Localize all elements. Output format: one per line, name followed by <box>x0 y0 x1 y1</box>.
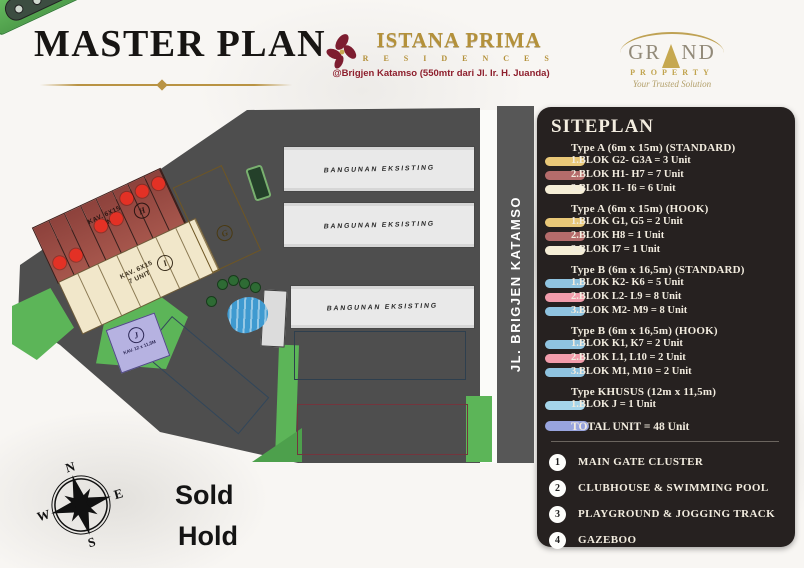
existing-building-label: BANGUNAN EKSISTING <box>326 302 438 312</box>
jogging-track-park <box>0 0 219 36</box>
siteplan-item-label: 1.BLOK G2- G3A = 3 Unit <box>571 155 785 166</box>
facility-label: PLAYGROUND & JOGGING TRACK <box>578 508 775 520</box>
compass-e: E <box>112 485 124 502</box>
siteplan-item: 2.BLOK L1, L10 = 2 Unit <box>549 352 785 366</box>
siteplan-item: 2.BLOK H8 = 1 Unit <box>549 230 785 244</box>
section-gap <box>549 197 785 201</box>
siteplan-section-header: Type KHUSUS (12m x 11,5m) <box>549 385 785 399</box>
existing-building-label: BANGUNAN EKSISTING <box>323 164 435 174</box>
siteplan-item: 2.BLOK L2- L9 = 8 Unit <box>549 291 785 305</box>
road-label: JL. BRIGJEN KATAMSO <box>508 196 523 372</box>
sold-marker <box>149 175 166 192</box>
facility-label: MAIN GATE CLUSTER <box>578 456 703 468</box>
facility-list: 1MAIN GATE CLUSTER2CLUBHOUSE & SWIMMING … <box>549 449 785 553</box>
facility-label: GAZEBOO <box>578 534 636 546</box>
siteplan-section-header: Type B (6m x 16,5m) (STANDARD) <box>549 263 785 277</box>
siteplan-item: 3.BLOK I7 = 1 Unit <box>549 244 785 258</box>
section-gap <box>549 413 785 417</box>
total-unit-label: TOTAL UNIT = 48 Unit <box>571 421 689 433</box>
existing-building-2: BANGUNAN EKSISTING <box>283 202 475 248</box>
tree-icon <box>217 279 228 290</box>
hold-swatch <box>133 523 163 553</box>
siteplan-item-label: 2.BLOK H1- H7 = 7 Unit <box>571 169 785 180</box>
siteplan-item-label: 2.BLOK H8 = 1 Unit <box>571 230 785 241</box>
facility-number-icon: 1 <box>549 454 566 471</box>
siteplan-item: 1.BLOK K1, K7 = 2 Unit <box>549 338 785 352</box>
facility-number-icon: 3 <box>549 506 566 523</box>
siteplan-item-label: 2.BLOK L2- L9 = 8 Unit <box>571 291 785 302</box>
siteplan-item-label: 3.BLOK I7 = 1 Unit <box>571 244 785 255</box>
siteplan-section-header: Type A (6m x 15m) (STANDARD) <box>549 141 785 155</box>
siteplan-item: 1.BLOK G2- G3A = 3 Unit <box>549 155 785 169</box>
siteplan-item: 1.BLOK J = 1 Unit <box>549 399 785 413</box>
section-gap <box>549 319 785 323</box>
siteplan-item-label: 1.BLOK G1, G5 = 2 Unit <box>571 216 785 227</box>
facility-number-icon: 2 <box>549 480 566 497</box>
hold-label: Hold <box>178 521 238 552</box>
siteplan-panel: SITEPLAN Type A (6m x 15m) (STANDARD)1.B… <box>537 107 795 547</box>
tree-icon <box>228 275 239 286</box>
main-road: JL. BRIGJEN KATAMSO <box>497 106 534 463</box>
siteplan-item-label: 3.BLOK M2- M9 = 8 Unit <box>571 305 785 316</box>
siteplan-item: 3.BLOK M2- M9 = 8 Unit <box>549 305 785 319</box>
siteplan-item-label: 3.BLOK I1- I6 = 6 Unit <box>571 183 785 194</box>
facility-item: 4GAZEBOO <box>549 527 785 553</box>
masterplan-poster: MASTER PLAN ISTANA PRIMA R E S I D E N C… <box>0 0 804 568</box>
facility-label: CLUBHOUSE & SWIMMING POOL <box>578 482 769 494</box>
siteplan-sections: Type A (6m x 15m) (STANDARD)1.BLOK G2- G… <box>549 141 785 417</box>
block-l-row <box>297 404 468 455</box>
siteplan-item: 3.BLOK I1- I6 = 6 Unit <box>549 183 785 197</box>
tree-icon <box>250 282 261 293</box>
sold-swatch <box>131 482 161 512</box>
facility-item: 3PLAYGROUND & JOGGING TRACK <box>549 501 785 527</box>
siteplan-title: SITEPLAN <box>551 116 785 138</box>
siteplan-item-label: 1.BLOK K2- K6 = 5 Unit <box>571 277 785 288</box>
existing-building-label: BANGUNAN EKSISTING <box>323 220 435 230</box>
facility-item: 2CLUBHOUSE & SWIMMING POOL <box>549 475 785 501</box>
green-area <box>466 396 492 462</box>
existing-building-1: BANGUNAN EKSISTING <box>283 146 475 192</box>
siteplan-item: 3.BLOK M1, M10 = 2 Unit <box>549 366 785 380</box>
block-g-letter: G <box>214 222 235 243</box>
siteplan-item-label: 1.BLOK J = 1 Unit <box>571 399 785 410</box>
facility-number-icon: 4 <box>549 532 566 549</box>
total-unit-row: TOTAL UNIT = 48 Unit <box>549 418 785 434</box>
section-gap <box>549 380 785 384</box>
siteplan-item-label: 3.BLOK M1, M10 = 2 Unit <box>571 366 785 377</box>
panel-divider <box>551 441 779 442</box>
jogging-track-icon <box>1 0 76 24</box>
tree-icon <box>206 296 217 307</box>
siteplan-item-label: 2.BLOK L1, L10 = 2 Unit <box>571 352 785 363</box>
sold-label: Sold <box>175 480 234 511</box>
siteplan-item: 1.BLOK G1, G5 = 2 Unit <box>549 216 785 230</box>
siteplan-item-label: 1.BLOK K1, K7 = 2 Unit <box>571 338 785 349</box>
tree-icon <box>239 278 250 289</box>
siteplan-section-header: Type A (6m x 15m) (HOOK) <box>549 202 785 216</box>
facility-item: 1MAIN GATE CLUSTER <box>549 449 785 475</box>
siteplan-item: 2.BLOK H1- H7 = 7 Unit <box>549 169 785 183</box>
siteplan-item: 1.BLOK K2- K6 = 5 Unit <box>549 277 785 291</box>
block-m-row <box>294 331 466 380</box>
section-gap <box>549 258 785 262</box>
existing-building-3: BANGUNAN EKSISTING <box>290 285 475 329</box>
siteplan-section-header: Type B (6m x 16,5m) (HOOK) <box>549 324 785 338</box>
